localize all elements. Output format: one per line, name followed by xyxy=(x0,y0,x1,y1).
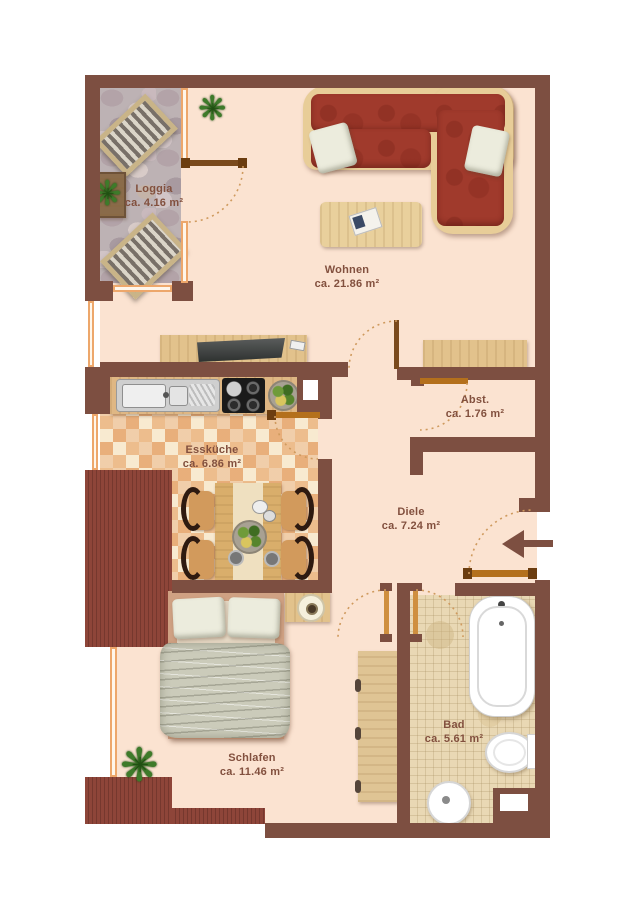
wardrobe-handle xyxy=(355,727,361,740)
place-setting xyxy=(264,551,280,567)
room-label-bad: Bad ca. 5.61 m² xyxy=(394,718,514,747)
door-jamb xyxy=(410,634,422,642)
wall xyxy=(455,583,535,596)
window xyxy=(88,301,94,367)
fruit-bowl xyxy=(232,520,267,554)
floor-plan: ❋ ❋ ❋ xyxy=(0,0,636,900)
door-jamb xyxy=(410,583,422,591)
room-area: ca. 11.46 m² xyxy=(192,765,312,779)
door-leaf xyxy=(469,570,530,577)
room-name: Diele xyxy=(351,505,471,519)
pillow xyxy=(172,597,226,640)
plant-icon: ❋ xyxy=(198,92,227,126)
wall xyxy=(535,88,550,498)
door-leaf xyxy=(384,589,389,637)
room-label-diele: Diele ca. 7.24 m² xyxy=(351,505,471,534)
room-name: Bad xyxy=(394,718,514,732)
hatched-area xyxy=(172,808,265,824)
room-area: ca. 21.86 m² xyxy=(287,277,407,291)
door-leaf xyxy=(394,320,399,369)
wardrobe-handle xyxy=(355,780,361,793)
window xyxy=(113,285,172,292)
plate xyxy=(263,510,276,522)
wall xyxy=(265,823,550,838)
wall xyxy=(318,459,332,593)
door-jamb xyxy=(238,158,247,168)
window xyxy=(110,647,117,777)
room-name: Schlafen xyxy=(192,751,312,765)
sink-basin xyxy=(122,384,166,408)
pillow xyxy=(227,597,280,639)
exterior-area xyxy=(85,647,110,777)
wall xyxy=(397,583,410,823)
room-area: ca. 7.24 m² xyxy=(351,519,471,533)
sideboard xyxy=(423,340,527,367)
wall xyxy=(172,281,193,301)
window xyxy=(181,88,188,161)
room-label-schlafen: Schlafen ca. 11.46 m² xyxy=(192,751,312,780)
wall xyxy=(410,437,535,452)
room-name: Wohnen xyxy=(287,263,407,277)
wall xyxy=(318,375,332,419)
shaft xyxy=(500,794,528,811)
room-area: ca. 4.16 m² xyxy=(94,196,214,210)
door-leaf xyxy=(413,589,418,637)
window xyxy=(181,221,188,283)
wall xyxy=(535,580,550,823)
sink-drainer xyxy=(189,384,215,406)
door-leaf xyxy=(420,378,468,384)
room-name: Abst. xyxy=(415,393,535,407)
room-label-wohnen: Wohnen ca. 21.86 m² xyxy=(287,263,407,292)
window xyxy=(92,414,98,470)
room-label-abstellraum: Abst. ca. 1.76 m² xyxy=(415,393,535,422)
plant-icon: ❋ xyxy=(120,742,159,788)
place-setting xyxy=(228,550,244,566)
door-jamb xyxy=(181,158,190,168)
kitchen-sink xyxy=(116,379,220,412)
faucet-icon xyxy=(498,601,505,608)
drain-icon xyxy=(499,621,504,626)
dining-chair xyxy=(189,491,214,530)
faucet-icon xyxy=(163,392,169,398)
wall xyxy=(410,437,423,475)
door-leaf xyxy=(186,160,243,166)
door-jamb xyxy=(463,568,472,579)
room-area: ca. 1.76 m² xyxy=(415,407,535,421)
room-label-loggia: Loggia ca. 4.16 m² xyxy=(94,182,214,211)
wall xyxy=(85,281,113,301)
cooktop xyxy=(222,378,265,413)
sink-basin xyxy=(169,386,188,406)
lamp xyxy=(297,594,325,622)
fruit-bowl xyxy=(268,380,299,411)
dining-chair xyxy=(189,540,214,579)
bathtub xyxy=(469,596,535,717)
dining-chair xyxy=(281,491,306,530)
hatched-area xyxy=(85,470,172,647)
wardrobe-handle xyxy=(355,679,361,692)
wall xyxy=(519,498,550,512)
wardrobe xyxy=(358,651,398,802)
blanket xyxy=(160,643,290,738)
wash-basin xyxy=(427,781,471,825)
door-jamb xyxy=(528,568,537,579)
door-jamb xyxy=(380,583,392,591)
wall xyxy=(85,75,550,88)
door-leaf xyxy=(275,412,320,418)
room-name: Essküche xyxy=(152,443,272,457)
door-jamb xyxy=(380,634,392,642)
room-name: Loggia xyxy=(94,182,214,196)
room-area: ca. 6.86 m² xyxy=(152,457,272,471)
dining-chair xyxy=(281,540,306,579)
room-label-esskueche: Essküche ca. 6.86 m² xyxy=(152,443,272,472)
door-jamb xyxy=(267,410,276,420)
room-area: ca. 5.61 m² xyxy=(394,732,514,746)
wall xyxy=(172,580,332,593)
